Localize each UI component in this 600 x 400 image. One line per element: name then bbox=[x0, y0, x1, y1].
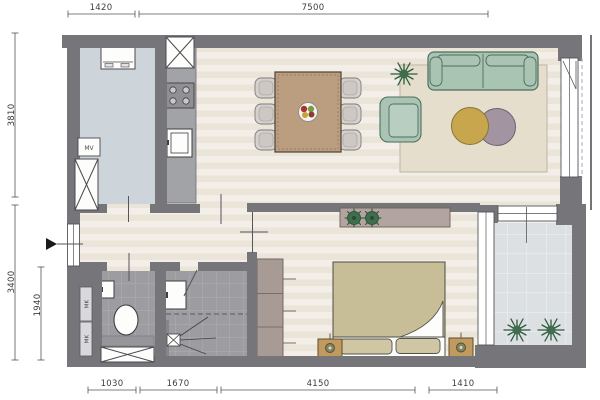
mk-lower-label: MK bbox=[85, 334, 91, 343]
dim-left-lower: 3400 bbox=[7, 205, 19, 360]
dim-label: 7500 bbox=[302, 3, 325, 13]
cistern-shelf bbox=[101, 336, 154, 346]
dim-label: 1940 bbox=[33, 294, 43, 317]
dim-label: 3810 bbox=[7, 104, 17, 127]
utility-shaft bbox=[75, 159, 98, 210]
dining-chair bbox=[339, 130, 361, 150]
armchair bbox=[380, 97, 421, 142]
mk-upper-label: MK bbox=[85, 299, 91, 308]
dim-left-upper: 3810 bbox=[7, 33, 19, 197]
plant-icon bbox=[363, 209, 381, 227]
dim-label: 4150 bbox=[307, 379, 330, 389]
pouf-yellow bbox=[452, 108, 489, 145]
dining-chair bbox=[255, 130, 277, 150]
dim-top-utility: 1420 bbox=[68, 3, 135, 18]
dim-label: 3400 bbox=[7, 271, 17, 294]
dim-bottom-bathroom: 1670 bbox=[140, 379, 217, 394]
wall-left-lower bbox=[67, 266, 80, 365]
dim-bottom-toilet: 1030 bbox=[88, 379, 136, 394]
dim-label: 1410 bbox=[452, 379, 475, 389]
sideboard bbox=[340, 208, 450, 227]
wall-toilet-left bbox=[92, 262, 102, 356]
mv-label: MV bbox=[84, 145, 94, 152]
dim-left-inner: 1940 bbox=[33, 267, 45, 360]
plant-icon bbox=[345, 209, 363, 227]
pillow bbox=[396, 339, 440, 354]
wall-top bbox=[62, 35, 582, 48]
dining-chair bbox=[255, 104, 277, 124]
wall-bottom-balcony bbox=[475, 345, 586, 368]
dim-top-living: 7500 bbox=[139, 3, 488, 18]
living-room-window bbox=[561, 58, 578, 177]
wall-toilet-bath bbox=[155, 262, 166, 356]
dim-label: 1420 bbox=[90, 3, 113, 13]
dim-bottom-balcony: 1410 bbox=[429, 379, 497, 394]
dim-label: 1030 bbox=[101, 379, 124, 389]
toilet-shaft bbox=[101, 347, 154, 362]
facade-lines bbox=[582, 35, 591, 210]
wall-bedroom-left bbox=[247, 252, 257, 356]
balcony-floor bbox=[493, 223, 572, 345]
entrance-door bbox=[68, 224, 80, 266]
sofa bbox=[428, 52, 538, 90]
dining-chair bbox=[339, 78, 361, 98]
dining-chair bbox=[255, 78, 277, 98]
bedroom-balcony-window bbox=[478, 212, 494, 345]
pillow bbox=[340, 339, 392, 354]
wall-mk-top bbox=[80, 262, 92, 287]
kitchen-counter bbox=[166, 47, 196, 203]
bed bbox=[333, 262, 445, 357]
dining-chair bbox=[339, 104, 361, 124]
wall-right-top bbox=[558, 35, 582, 61]
wall-hall-top-b bbox=[150, 204, 200, 213]
floor-plan-page: MK MK MV bbox=[0, 0, 600, 400]
dim-bottom-bedroom: 4150 bbox=[221, 379, 415, 394]
wall-balcony-right bbox=[572, 225, 586, 347]
fruit-bowl bbox=[299, 103, 318, 122]
wall-utility-right bbox=[155, 47, 167, 207]
dim-label: 1670 bbox=[167, 379, 190, 389]
kitchen-shaft bbox=[166, 37, 194, 68]
dining-set bbox=[255, 72, 361, 152]
cooktop bbox=[165, 83, 194, 108]
mv-box: MV bbox=[78, 138, 100, 156]
toilet bbox=[114, 305, 138, 335]
entrance-arrow-icon bbox=[46, 238, 57, 250]
wall-balcony-corner bbox=[556, 204, 586, 225]
floor-plan-drawing: MK MK MV bbox=[0, 0, 600, 400]
